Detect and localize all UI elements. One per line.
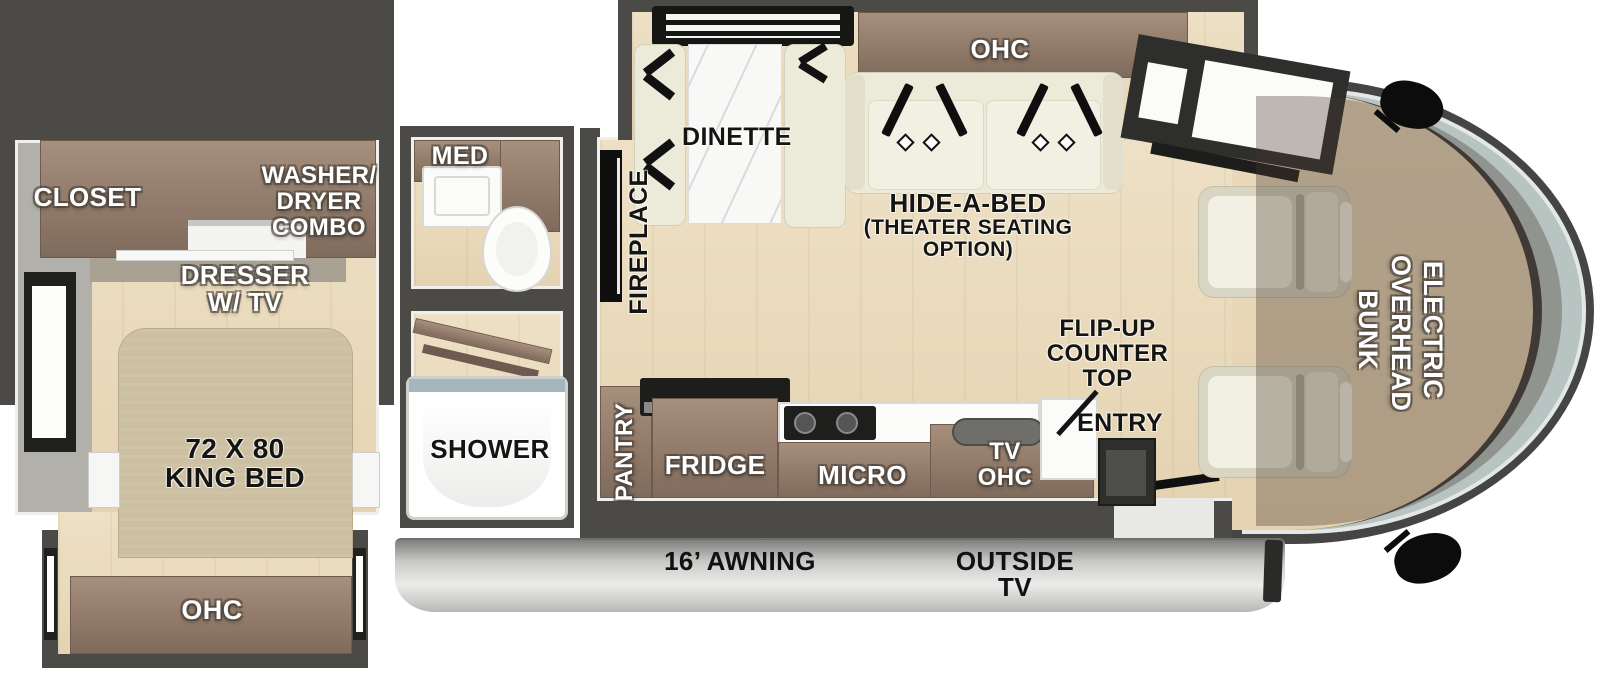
closet-label: CLOSET [30, 184, 145, 211]
label-line: FLIP-UP [1035, 316, 1180, 341]
label-line: WASHER/ [245, 163, 393, 189]
fridge-cabinet [652, 398, 778, 498]
label-line: DRYER [245, 189, 393, 215]
label-line: BUNK [1352, 255, 1384, 405]
label-line: ELECTRIC [1417, 255, 1449, 405]
label-line: OPTION) [838, 239, 1098, 261]
tv-ohc-label: OHC [950, 466, 1060, 491]
sofa-armrest-left [845, 74, 865, 190]
label-line: OVERHEAD [1384, 255, 1416, 405]
label-line: W/ TV [170, 289, 320, 316]
bathroom-sink [422, 166, 502, 228]
fireplace-unit [600, 150, 622, 302]
window-pane [356, 556, 363, 632]
living-left-wall [580, 128, 600, 538]
flip-up-counter-label: FLIP-UP COUNTER TOP [1035, 316, 1180, 392]
microwave-label: MICRO [800, 462, 925, 489]
label-line: COUNTER [1035, 341, 1180, 366]
fridge-label: FRIDGE [652, 452, 778, 479]
dresser-label: DRESSER W/ TV [170, 262, 320, 316]
window-pane [47, 556, 54, 632]
entry-step-well [1098, 438, 1156, 506]
nightstand-left [88, 452, 120, 508]
burner [794, 412, 816, 434]
sofa-armrest-right [1103, 74, 1123, 190]
label-line: TOP [1035, 366, 1180, 391]
cooktop [784, 406, 876, 440]
bedroom-left-window [24, 272, 76, 452]
slideout-left-window [44, 548, 57, 640]
shower-label: SHOWER [425, 436, 555, 463]
toilet [482, 206, 552, 292]
label-line: COMBO [245, 215, 393, 241]
awning-label: 16’ AWNING [655, 548, 825, 575]
overhead-bunk-label: ELECTRIC OVERHEAD BUNK [1351, 255, 1449, 405]
slideout-right-window [353, 548, 366, 640]
pantry-label: PANTRY [613, 387, 639, 517]
label-line: KING BED [160, 463, 310, 492]
nightstand-right [352, 452, 380, 508]
awning-end-cap [1263, 540, 1283, 603]
fireplace-label: FIREPLACE [626, 152, 654, 332]
med-cabinet-label: MED [420, 143, 500, 169]
hide-a-bed-label: HIDE-A-BED (THEATER SEATING OPTION) [838, 190, 1098, 261]
outside-tv-label-line2: TV [950, 574, 1080, 601]
dinette-label: DINETTE [682, 124, 787, 150]
entry-label: ENTRY [1070, 410, 1170, 436]
label-line: 72 X 80 [160, 434, 310, 463]
window-pane [32, 286, 66, 438]
label-line: (THEATER SEATING [838, 217, 1098, 239]
window-pane [1138, 62, 1187, 124]
tv-label: TV [950, 440, 1060, 465]
shower-glass-door [409, 379, 565, 392]
bedroom-ohc-label: OHC [142, 596, 282, 624]
label-line: HIDE-A-BED [838, 190, 1098, 217]
emergency-exit-skylight [652, 6, 854, 46]
awning-bar [395, 538, 1285, 612]
washer-dryer-label: WASHER/ DRYER COMBO [245, 163, 393, 241]
living-ohc-label: OHC [940, 36, 1060, 63]
king-bed-label: 72 X 80 KING BED [160, 434, 310, 492]
outside-tv-label: OUTSIDE [950, 548, 1080, 575]
label-line: DRESSER [170, 262, 320, 289]
rv-floorplan: CLOSET WASHER/ DRYER COMBO DRESSER W/ TV… [0, 0, 1600, 681]
burner [836, 412, 858, 434]
